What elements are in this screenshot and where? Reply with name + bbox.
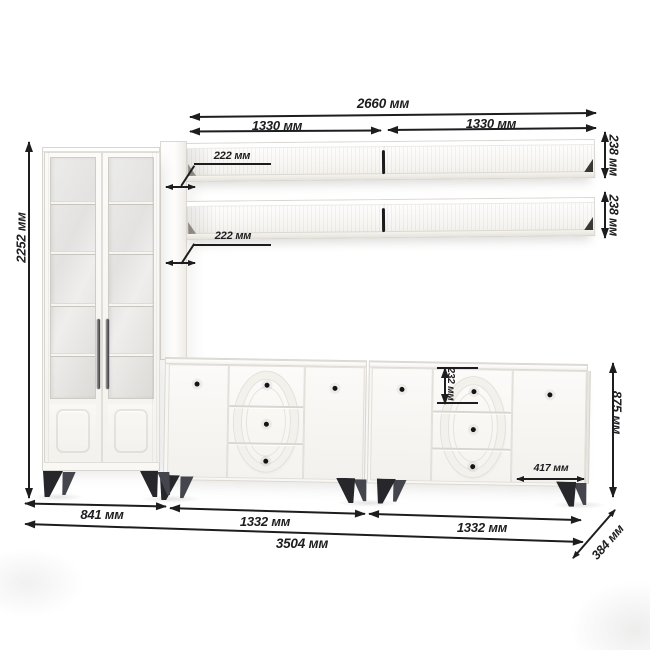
panel-molding [56, 409, 90, 453]
interior-shelf [51, 251, 95, 255]
shelf-front [187, 203, 594, 233]
background-shade-left [0, 548, 85, 618]
glass-pane [108, 157, 154, 399]
background-shade-right [570, 580, 650, 650]
floor-shadow [140, 495, 202, 503]
interior-shelf [109, 353, 153, 357]
dim-shelf-height-bottom-label: 238 мм [607, 178, 620, 252]
dim-sideboard-width-left-label: 1332 мм [225, 515, 305, 528]
dim-sideboard-height-label: 875 мм [611, 378, 624, 448]
dim-sideboard-depth-label: 384 мм [584, 516, 633, 569]
sideboard-left [163, 357, 367, 483]
dim-shelf-total-width-label: 2660 мм [341, 97, 425, 111]
door-knob [195, 381, 200, 386]
furniture-dimension-diagram: 2252 мм 2660 мм 1330 мм 1330 мм 238 мм 2… [0, 0, 650, 650]
panel-molding [114, 409, 148, 453]
dim-cabinet-width-label: 841 мм [62, 508, 142, 521]
floor-shadow [552, 501, 606, 509]
leader-line [194, 244, 271, 246]
fluted-pilaster [44, 152, 50, 462]
interior-shelf [51, 201, 95, 205]
dim-cabinet-height-label: 2252 мм [15, 198, 28, 278]
interior-shelf [51, 353, 95, 357]
leader-line [194, 163, 271, 165]
dimension-arrow [517, 478, 584, 480]
interior-shelf [109, 201, 153, 205]
floor-shadow [32, 493, 84, 501]
sideboard-door [370, 367, 433, 481]
drawer-knob [265, 383, 270, 388]
glass-pane [50, 157, 96, 399]
interior-shelf [51, 303, 95, 307]
drawer-knob [264, 422, 269, 427]
dimension-arrow [166, 262, 195, 264]
dim-shelf-width-left-label: 1330 мм [237, 119, 317, 132]
sideboard-door [303, 366, 365, 480]
display-cabinet [42, 147, 160, 471]
dim-door-width-label: 417 мм [513, 463, 589, 474]
door-handle [106, 319, 109, 389]
dimension-arrow [190, 112, 596, 118]
dim-drawer-height-label: 232 мм [445, 358, 455, 410]
dim-shelf-width-right-label: 1330 мм [451, 117, 531, 130]
lower-door-panel [50, 404, 96, 458]
door-knob [547, 392, 552, 397]
door-handle [97, 319, 100, 389]
drawer-knob [471, 389, 476, 394]
dim-sideboard-width-right-label: 1332 мм [442, 521, 522, 534]
lower-door-panel [108, 404, 154, 458]
dimension-arrow [28, 142, 30, 498]
interior-shelf [109, 251, 153, 255]
fluted-pilaster [152, 152, 158, 462]
shelf-handle [382, 150, 385, 174]
door-knob [332, 386, 337, 391]
floor-shadow [336, 499, 402, 507]
glass-door-left [44, 152, 102, 463]
interior-shelf [109, 303, 153, 307]
shelf-handle [382, 208, 385, 232]
dim-shelf-depth-top-label: 222 мм [202, 151, 262, 162]
drawer-knob [263, 459, 268, 464]
drawer-knob [470, 464, 475, 469]
dimension-arrow [166, 186, 195, 188]
dim-total-width-label: 3504 мм [262, 537, 342, 551]
dim-shelf-depth-bottom-label: 222 мм [203, 231, 263, 242]
door-knob [399, 387, 404, 392]
drawer-knob [471, 427, 476, 432]
wall-panel [160, 141, 187, 360]
